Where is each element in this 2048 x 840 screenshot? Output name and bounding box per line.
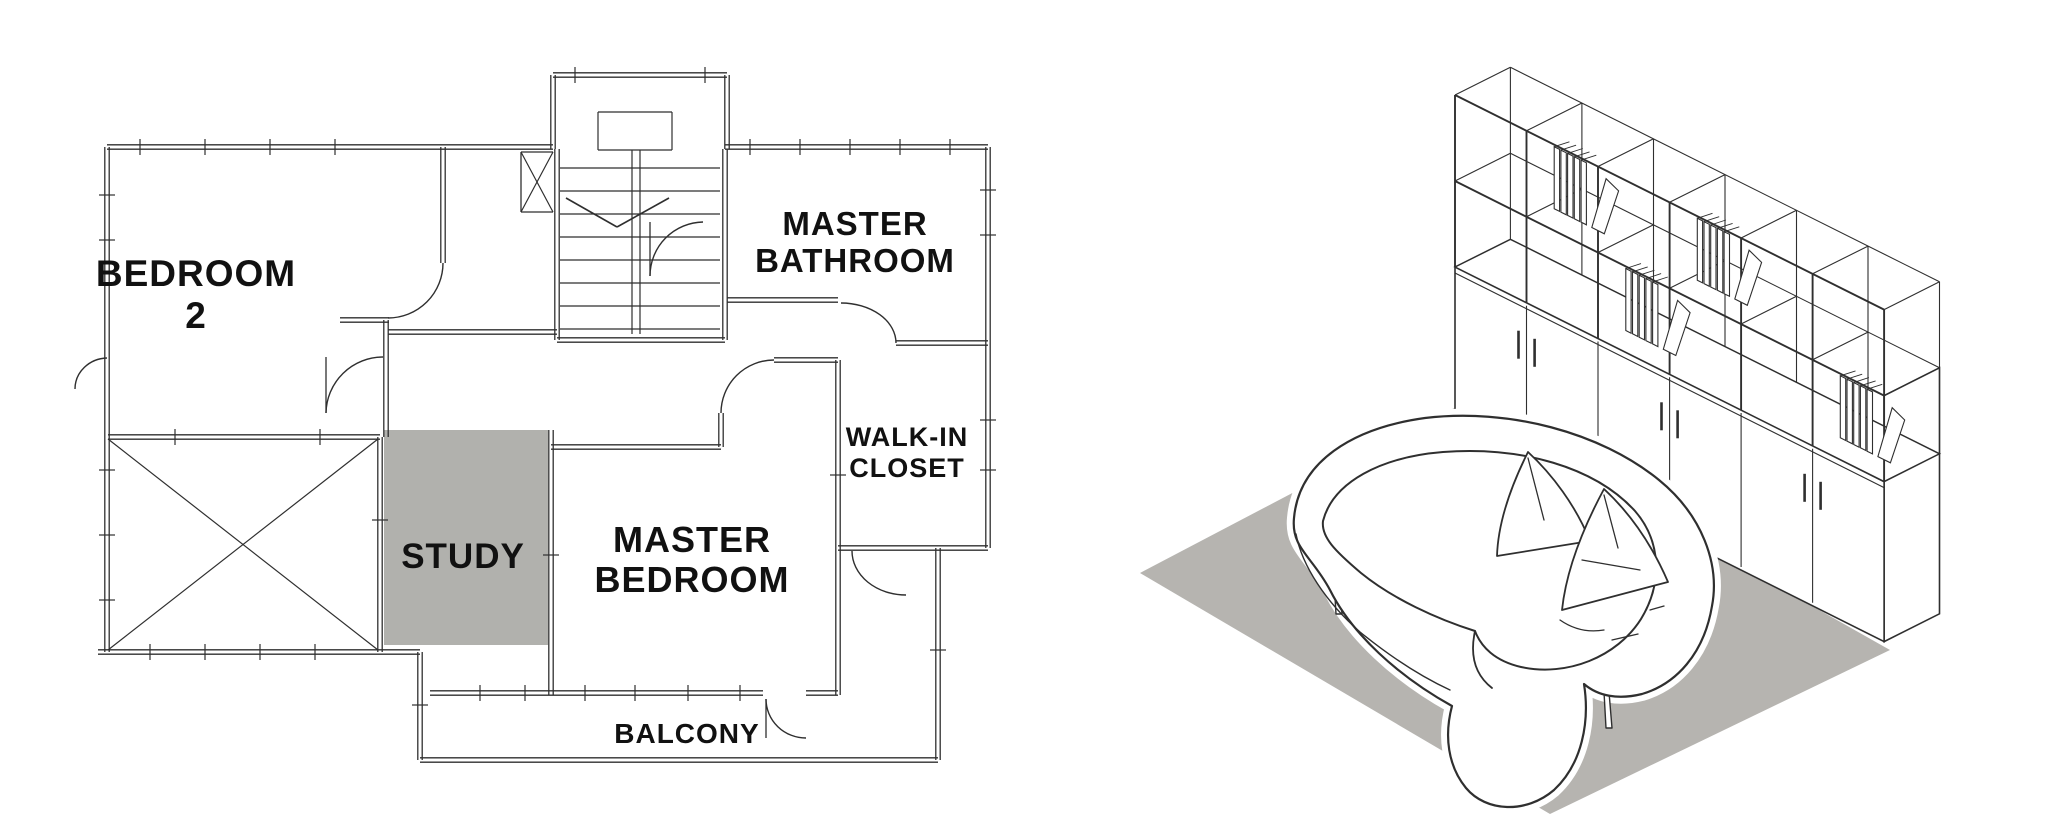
door-swing-arc [852,551,906,595]
book-top [1704,217,1719,222]
book-top [1854,378,1869,383]
book-top [1626,264,1641,269]
room-label-bedroom-2-line2: 2 [185,295,207,336]
frame-depth-rail [1455,67,1510,95]
book-top [1867,384,1882,389]
door-swing-arc [326,357,383,413]
book-top [1840,371,1855,376]
leaning-book [1592,179,1619,234]
book [1639,275,1644,340]
book [1626,269,1631,334]
room-label-master-bathroom-line2: BATHROOM [755,242,955,279]
book [1633,272,1638,337]
book [1574,157,1579,222]
door-swing-arc [650,222,703,276]
book [1860,386,1865,451]
book-top [1554,142,1569,147]
book [1561,150,1566,215]
book-top [1847,374,1862,379]
frame-depth-rail [1741,210,1796,238]
book [1840,376,1845,441]
book [1581,160,1586,225]
door-swing-arc [841,303,896,343]
room-label-master-bedroom-line1: MASTER [613,519,771,560]
door-swing-arc [721,360,774,413]
leaning-book [1735,250,1762,305]
door-swing-arc [766,699,806,738]
room-label-master-bedroom-line2: BEDROOM [595,559,790,600]
book [1554,147,1559,212]
stair-direction-arrow [617,198,669,227]
frame-depth-rail [1884,282,1939,310]
room-label-walk-in-closet-line2: CLOSET [849,453,965,483]
room-label-walk-in-closet-line1: WALK-IN [846,422,968,452]
book-top [1633,267,1648,272]
book-top [1561,145,1576,150]
frame-depth-rail [1813,246,1868,274]
book-top [1653,277,1668,282]
book [1697,218,1702,283]
book [1568,153,1573,218]
room-label-bedroom-2-line1: BEDROOM [96,253,296,294]
book-top [1711,220,1726,225]
door-swing-arc [75,358,107,389]
frame-depth-rail [1670,175,1725,203]
drawing-sheet: BEDROOM 2 MASTER BATHROOM WALK-IN CLOSET… [0,0,2048,840]
book [1717,228,1722,293]
floor-plan-drawing: BEDROOM 2 MASTER BATHROOM WALK-IN CLOSET… [75,67,996,762]
stair-direction-arrow [566,198,617,227]
book [1646,279,1651,344]
book [1724,232,1729,297]
book-top [1697,213,1712,218]
book-top [1639,270,1654,275]
book [1847,379,1852,444]
book [1854,383,1859,448]
room-label-balcony: BALCONY [614,718,759,749]
book-top [1568,149,1583,154]
room-label-master-bathroom-line1: MASTER [782,205,927,242]
room-label-study: STUDY [401,537,525,576]
door-swing-arc [388,263,443,318]
plan-walls [98,73,990,762]
frame-depth-rail [1455,153,1510,181]
book [1711,225,1716,290]
book-top [1724,227,1739,232]
isometric-room-drawing [1140,67,1940,814]
book [1653,282,1658,347]
book [1704,222,1709,287]
frame-depth-rail [1598,139,1654,167]
book [1867,389,1872,454]
frame-depth-rail [1813,332,1868,360]
architectural-drawing-canvas: BEDROOM 2 MASTER BATHROOM WALK-IN CLOSET… [0,0,2048,840]
book-top [1581,155,1596,160]
frame-depth-rail [1527,103,1582,131]
